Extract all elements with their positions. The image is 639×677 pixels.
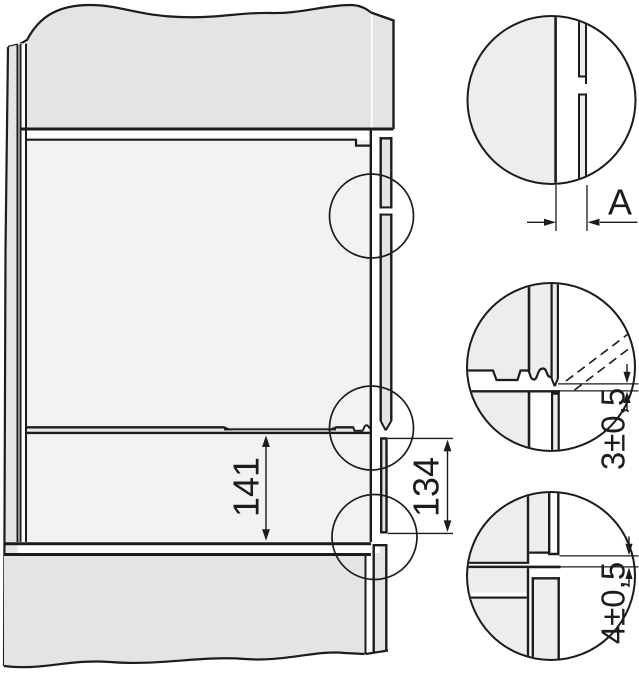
plinth-body	[4, 556, 365, 667]
detail-circle-a: A	[466, 14, 638, 231]
dimension-134-label: 134	[406, 457, 447, 517]
front-panel-door	[380, 214, 393, 431]
dimension-4mm-label: 4±0,5	[595, 562, 632, 644]
detail-circle-4mm: 4±0,5	[462, 491, 639, 661]
upper-niche	[27, 140, 371, 428]
dimension-141-label: 141	[226, 457, 267, 517]
niche-floor-line	[4, 544, 371, 555]
installation-diagram-page: 141 134 A	[0, 0, 639, 677]
installation-diagram: 141 134 A	[0, 0, 639, 677]
top-cabinet-body	[27, 5, 371, 128]
front-panel-upper	[380, 137, 393, 209]
dimension-3mm-label: 3±0,5	[595, 388, 632, 470]
lower-niche	[27, 434, 371, 542]
main-section-drawing: 141 134	[4, 5, 453, 667]
detail-circle-3mm: 3±0,5	[462, 282, 639, 470]
dimension-a-label: A	[608, 182, 632, 223]
dimension-134: 134	[388, 438, 453, 533]
top-front-strip	[373, 14, 394, 130]
front-panel-lower	[380, 437, 388, 533]
